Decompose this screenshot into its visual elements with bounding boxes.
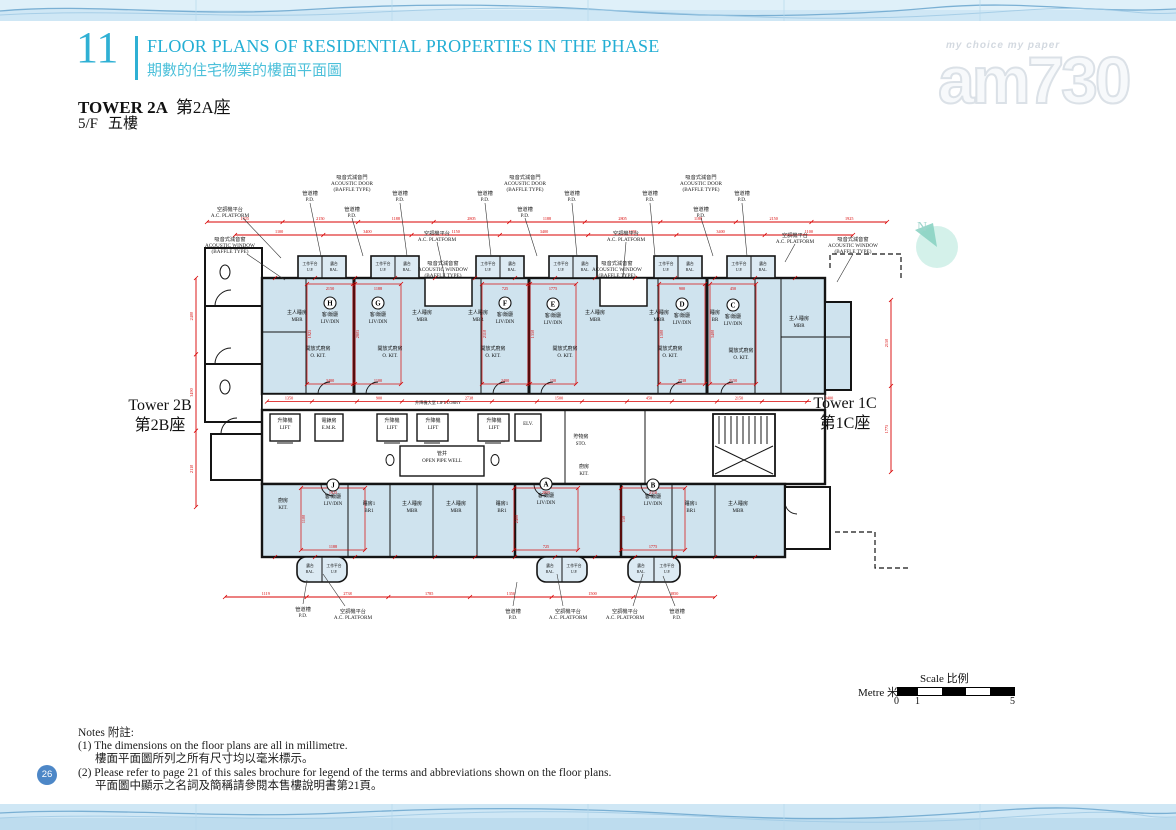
svg-text:管道槽: 管道槽 (302, 189, 318, 197)
svg-text:主人睡房: 主人睡房 (789, 315, 809, 322)
svg-text:BAL.: BAL. (330, 268, 339, 272)
svg-text:睡房: 睡房 (710, 309, 720, 316)
floor-heading-zh: 五樓 (108, 116, 138, 132)
svg-text:LIFT: LIFT (280, 426, 291, 431)
svg-text:電錶房: 電錶房 (321, 417, 336, 424)
svg-text:O. KIT.: O. KIT. (662, 354, 677, 359)
svg-text:2150: 2150 (735, 396, 743, 401)
svg-text:E: E (551, 301, 556, 309)
svg-text:BAL.: BAL. (508, 268, 517, 272)
svg-text:升降機: 升降機 (486, 417, 501, 424)
staircase (713, 414, 775, 476)
svg-text:LIV/DIN: LIV/DIN (644, 502, 663, 507)
svg-text:1500: 1500 (659, 330, 664, 338)
svg-text:3850: 3850 (670, 591, 678, 596)
svg-text:露台: 露台 (546, 563, 554, 568)
svg-text:LIFT: LIFT (428, 426, 439, 431)
svg-text:主人睡房: 主人睡房 (412, 309, 432, 316)
svg-text:E.M.R.: E.M.R. (322, 426, 337, 431)
scale-tick-1: 1 (915, 696, 920, 707)
svg-text:BR1: BR1 (364, 509, 374, 514)
svg-text:450: 450 (646, 396, 652, 401)
svg-text:MBR: MBR (450, 509, 462, 514)
svg-text:KIT.: KIT. (579, 472, 588, 477)
svg-text:客/飯廳: 客/飯廳 (538, 492, 554, 499)
svg-text:2805: 2805 (618, 216, 626, 221)
svg-text:BAL.: BAL. (759, 268, 768, 272)
svg-text:P.D.: P.D. (299, 613, 308, 619)
svg-text:1775: 1775 (649, 544, 657, 549)
svg-text:3400: 3400 (326, 378, 334, 383)
svg-text:BAL.: BAL. (686, 268, 695, 272)
svg-text:2738: 2738 (678, 378, 686, 383)
notes-heading: Notes 附註: (78, 727, 611, 740)
tower-heading-zh: 第2A座 (176, 98, 231, 117)
svg-text:空調機平台: 空調機平台 (217, 205, 243, 213)
svg-text:BR1: BR1 (497, 509, 507, 514)
svg-text:工作平台: 工作平台 (375, 261, 390, 266)
svg-text:O. KIT.: O. KIT. (485, 354, 500, 359)
svg-text:管道槽: 管道槽 (344, 205, 360, 213)
svg-text:主人睡房: 主人睡房 (287, 309, 307, 316)
svg-text:1100: 1100 (301, 515, 306, 523)
svg-text:開放式廚房: 開放式廚房 (552, 345, 577, 352)
svg-text:2400: 2400 (189, 312, 194, 320)
svg-text:2805: 2805 (355, 330, 360, 338)
svg-text:工作平台: 工作平台 (553, 261, 568, 266)
svg-text:H: H (327, 300, 333, 308)
svg-text:U.P.: U.P. (331, 570, 337, 574)
svg-text:(BAFFLE TYPE): (BAFFLE TYPE) (683, 186, 720, 193)
svg-text:LIV/DIN: LIV/DIN (544, 321, 563, 326)
north-label-glyph: N (917, 220, 927, 235)
svg-text:工作平台: 工作平台 (326, 563, 341, 568)
svg-text:開放式廚房: 開放式廚房 (305, 345, 330, 352)
svg-text:725: 725 (543, 544, 549, 549)
svg-text:主人睡房: 主人睡房 (468, 309, 488, 316)
north-compass: N (903, 205, 967, 277)
svg-text:3400: 3400 (716, 229, 724, 234)
svg-text:客/飯廳: 客/飯廳 (325, 493, 341, 500)
svg-text:A.C. PLATFORM: A.C. PLATFORM (606, 615, 645, 621)
svg-text:升降機: 升降機 (425, 417, 440, 424)
svg-text:開放式廚房: 開放式廚房 (657, 345, 682, 352)
svg-text:2400: 2400 (514, 515, 519, 523)
note-2-zh: 平面圖中顯示之名詞及簡稱請參閱本售樓說明書第21頁。 (78, 780, 611, 793)
svg-text:管井: 管井 (437, 450, 447, 457)
svg-text:2400: 2400 (501, 378, 509, 383)
svg-text:管道槽: 管道槽 (693, 205, 709, 213)
svg-text:主人睡房: 主人睡房 (585, 309, 605, 316)
page-title-zh: 期數的住宅物業的樓面平面圖 (147, 59, 342, 80)
svg-text:1188: 1188 (329, 544, 337, 549)
svg-text:空調機平台: 空調機平台 (613, 229, 639, 237)
svg-text:露台: 露台 (306, 563, 314, 568)
svg-text:A: A (543, 481, 548, 489)
svg-text:1188: 1188 (392, 216, 400, 221)
svg-text:U.P.: U.P. (558, 268, 564, 272)
svg-text:U.P.: U.P. (663, 268, 669, 272)
tower-2b-en: Tower 2B (105, 396, 215, 416)
svg-text:U.P.: U.P. (380, 268, 386, 272)
scale-bar: Scale 比例 Metre 米 0 1 5 (858, 668, 1034, 712)
svg-text:露台: 露台 (581, 261, 589, 266)
page-number-badge: 26 (37, 765, 57, 785)
svg-text:露台: 露台 (637, 563, 645, 568)
svg-text:吸音式減音窗: 吸音式減音窗 (601, 259, 632, 267)
svg-text:開放式廚房: 開放式廚房 (480, 345, 505, 352)
svg-text:O. KIT.: O. KIT. (557, 354, 572, 359)
svg-text:2150: 2150 (729, 378, 737, 383)
svg-text:MBR: MBR (653, 318, 665, 323)
svg-text:露台: 露台 (508, 261, 516, 266)
svg-text:開放式廚房: 開放式廚房 (377, 345, 402, 352)
svg-text:管道槽: 管道槽 (392, 189, 408, 197)
svg-text:管道槽: 管道槽 (669, 607, 685, 615)
svg-text:G: G (375, 300, 381, 308)
svg-text:客/飯廳: 客/飯廳 (645, 493, 661, 500)
svg-text:150: 150 (550, 378, 556, 383)
scale-label: Scale 比例 (920, 670, 969, 686)
svg-text:(BAFFLE TYPE): (BAFFLE TYPE) (599, 272, 636, 279)
brochure-page: 11 FLOOR PLANS OF RESIDENTIAL PROPERTIES… (0, 0, 1176, 830)
svg-text:管道槽: 管道槽 (564, 189, 580, 197)
svg-text:1350: 1350 (530, 330, 535, 338)
top-wave-art (0, 0, 1176, 21)
svg-text:MBR: MBR (291, 318, 303, 323)
svg-text:LIV/DIN: LIV/DIN (321, 320, 340, 325)
svg-text:廚房: 廚房 (579, 463, 589, 470)
svg-text:2738: 2738 (343, 591, 351, 596)
svg-text:開放式廚房: 開放式廚房 (728, 347, 753, 354)
svg-text:管道槽: 管道槽 (517, 205, 533, 213)
svg-text:吸音式減音門: 吸音式減音門 (336, 173, 367, 181)
note-1-zh: 樓面平面圖所列之所有尺寸均以毫米標示。 (78, 753, 611, 766)
svg-text:露台: 露台 (759, 261, 767, 266)
svg-text:900: 900 (679, 286, 685, 291)
svg-text:MBR: MBR (406, 509, 418, 514)
svg-text:3400: 3400 (540, 229, 548, 234)
scale-bar-strip (897, 687, 1015, 696)
svg-text:客/飯廳: 客/飯廳 (322, 311, 338, 318)
svg-text:LIV/DIN: LIV/DIN (324, 502, 343, 507)
svg-text:(BAFFLE TYPE): (BAFFLE TYPE) (212, 248, 249, 255)
svg-text:U.P.: U.P. (736, 268, 742, 272)
svg-text:BAL.: BAL. (306, 570, 315, 574)
svg-text:1785: 1785 (425, 591, 433, 596)
svg-text:1775: 1775 (549, 286, 557, 291)
svg-text:主人睡房: 主人睡房 (446, 500, 466, 507)
svg-text:1925: 1925 (845, 216, 853, 221)
svg-text:KIT.: KIT. (278, 506, 287, 511)
svg-text:吸音式減音窗: 吸音式減音窗 (837, 235, 868, 243)
svg-text:450: 450 (730, 286, 736, 291)
note-2-en: (2) Please refer to page 21 of this sale… (78, 767, 611, 780)
svg-text:C: C (730, 302, 735, 310)
svg-text:LIV/DIN: LIV/DIN (496, 320, 515, 325)
svg-text:空調機平台: 空調機平台 (782, 231, 808, 239)
svg-text:客/飯廳: 客/飯廳 (545, 312, 561, 319)
svg-text:BAL.: BAL. (546, 570, 555, 574)
svg-text:1925: 1925 (307, 330, 312, 338)
bottom-wave-art (0, 804, 1176, 830)
svg-text:升降機: 升降機 (384, 417, 399, 424)
svg-text:主人睡房: 主人睡房 (402, 500, 422, 507)
svg-text:管道槽: 管道槽 (295, 605, 311, 613)
svg-text:貯物房: 貯物房 (573, 433, 588, 440)
svg-text:吸音式減音門: 吸音式減音門 (685, 173, 716, 181)
tower-1c-zh: 第1C座 (790, 414, 900, 434)
svg-text:1100: 1100 (374, 378, 382, 383)
scale-tick-5: 5 (1010, 696, 1015, 707)
svg-text:A.C. PLATFORM: A.C. PLATFORM (776, 239, 815, 245)
svg-text:(BAFFLE TYPE): (BAFFLE TYPE) (507, 186, 544, 193)
svg-text:U.P.: U.P. (571, 570, 577, 574)
svg-text:OPEN PIPE WELL: OPEN PIPE WELL (422, 459, 462, 464)
svg-text:客/飯廳: 客/飯廳 (674, 312, 690, 319)
svg-text:客/飯廳: 客/飯廳 (497, 311, 513, 318)
svg-text:露台: 露台 (330, 261, 338, 266)
svg-text:A.C. PLATFORM: A.C. PLATFORM (334, 615, 373, 621)
section-number: 11 (76, 26, 118, 70)
svg-text:空調機平台: 空調機平台 (340, 607, 366, 615)
svg-text:工作平台: 工作平台 (658, 261, 673, 266)
page-title-en: FLOOR PLANS OF RESIDENTIAL PROPERTIES IN… (147, 36, 659, 57)
svg-text:3400: 3400 (363, 229, 371, 234)
svg-text:U.P.: U.P. (307, 268, 313, 272)
svg-text:U.P.: U.P. (664, 570, 670, 574)
svg-text:1500: 1500 (555, 396, 563, 401)
bottom-wave-bar (0, 804, 1176, 830)
svg-text:MBR: MBR (589, 318, 601, 323)
am730-logo: am730 (938, 42, 1129, 118)
svg-text:(BAFFLE TYPE): (BAFFLE TYPE) (835, 248, 872, 255)
svg-text:吸音式減音門: 吸音式減音門 (509, 173, 540, 181)
svg-text:LIV/DIN: LIV/DIN (369, 320, 388, 325)
svg-text:管道槽: 管道槽 (477, 189, 493, 197)
metre-label: Metre 米 (858, 684, 898, 700)
svg-text:BAL.: BAL. (637, 570, 646, 574)
svg-text:2150: 2150 (326, 286, 334, 291)
svg-text:1500: 1500 (588, 591, 596, 596)
svg-text:1188: 1188 (374, 286, 382, 291)
svg-text:管道槽: 管道槽 (642, 189, 658, 197)
svg-text:1350: 1350 (285, 396, 293, 401)
svg-text:工作平台: 工作平台 (566, 563, 581, 568)
svg-text:P.D.: P.D. (481, 197, 490, 203)
svg-text:1350: 1350 (507, 591, 515, 596)
svg-text:A.C. PLATFORM: A.C. PLATFORM (211, 213, 250, 219)
tower-1c-en: Tower 1C (790, 394, 900, 414)
svg-text:F: F (503, 300, 507, 308)
svg-text:U.P.: U.P. (485, 268, 491, 272)
svg-text:升降機: 升降機 (277, 417, 292, 424)
svg-text:D: D (679, 301, 684, 309)
svg-text:2805: 2805 (467, 216, 475, 221)
svg-text:吸音式減音窗: 吸音式減音窗 (427, 259, 458, 267)
top-wave-bar (0, 0, 1176, 21)
svg-text:客/飯廳: 客/飯廳 (725, 313, 741, 320)
svg-text:(BAFFLE TYPE): (BAFFLE TYPE) (425, 272, 462, 279)
svg-text:睡房1: 睡房1 (363, 500, 376, 507)
am730-watermark: my choice my paper am730 (884, 30, 1170, 126)
tower-2b-label: Tower 2B 第2B座 (105, 396, 215, 436)
svg-text:LIV/DIN: LIV/DIN (673, 321, 692, 326)
svg-text:2110: 2110 (189, 465, 194, 473)
svg-text:MBR: MBR (472, 318, 484, 323)
svg-text:ELV.: ELV. (523, 422, 533, 427)
svg-text:1150: 1150 (452, 229, 460, 234)
svg-text:O. KIT.: O. KIT. (310, 354, 325, 359)
svg-text:P.D.: P.D. (738, 197, 747, 203)
svg-text:150: 150 (621, 516, 626, 522)
floor-heading: 5/F五樓 (78, 112, 138, 133)
scale-tick-0: 0 (894, 696, 899, 707)
svg-text:露台: 露台 (686, 261, 694, 266)
svg-text:LIV/DIN: LIV/DIN (537, 501, 556, 506)
svg-text:2738: 2738 (465, 396, 473, 401)
svg-text:工作平台: 工作平台 (480, 261, 495, 266)
svg-text:P.D.: P.D. (568, 197, 577, 203)
svg-text:廚房: 廚房 (278, 497, 288, 504)
svg-text:MBR: MBR (732, 509, 744, 514)
svg-text:升降機大堂 LIFT LOBBY: 升降機大堂 LIFT LOBBY (415, 399, 461, 406)
svg-text:主人睡房: 主人睡房 (649, 309, 669, 316)
svg-text:工作平台: 工作平台 (659, 563, 674, 568)
svg-text:工作平台: 工作平台 (731, 261, 746, 266)
svg-text:主人睡房: 主人睡房 (728, 500, 748, 507)
svg-text:900: 900 (376, 396, 382, 401)
tower-2b-zh: 第2B座 (105, 416, 215, 436)
svg-text:睡房1: 睡房1 (685, 500, 698, 507)
svg-text:1100: 1100 (275, 229, 283, 234)
svg-text:LIV/DIN: LIV/DIN (724, 322, 743, 327)
svg-text:B: B (651, 482, 656, 490)
svg-text:客/飯廳: 客/飯廳 (370, 311, 386, 318)
svg-text:空調機平台: 空調機平台 (555, 607, 581, 615)
svg-text:P.D.: P.D. (509, 615, 518, 621)
svg-text:MBR: MBR (793, 324, 805, 329)
svg-text:A.C. PLATFORM: A.C. PLATFORM (549, 615, 588, 621)
svg-text:管道槽: 管道槽 (734, 189, 750, 197)
svg-text:MBR: MBR (416, 318, 428, 323)
svg-text:725: 725 (502, 286, 508, 291)
svg-text:P.D.: P.D. (306, 197, 315, 203)
north-compass-icon: N (903, 205, 967, 277)
svg-text:STO.: STO. (576, 442, 587, 447)
svg-text:P.D.: P.D. (396, 197, 405, 203)
svg-text:吸音式減音窗: 吸音式減音窗 (214, 235, 245, 243)
svg-text:1119: 1119 (262, 591, 270, 596)
svg-text:管道槽: 管道槽 (505, 607, 521, 615)
svg-text:BAL.: BAL. (403, 268, 412, 272)
svg-text:BR: BR (712, 318, 719, 323)
svg-text:P.D.: P.D. (646, 197, 655, 203)
svg-text:工作平台: 工作平台 (302, 261, 317, 266)
svg-text:2150: 2150 (884, 339, 889, 347)
floor-heading-en: 5/F (78, 116, 98, 132)
svg-text:空調機平台: 空調機平台 (424, 229, 450, 237)
svg-text:BR1: BR1 (686, 509, 696, 514)
svg-text:O. KIT.: O. KIT. (382, 354, 397, 359)
svg-text:睡房1: 睡房1 (496, 500, 509, 507)
svg-text:3400: 3400 (710, 330, 715, 338)
svg-text:2150: 2150 (316, 216, 324, 221)
svg-text:露台: 露台 (403, 261, 411, 266)
svg-text:J: J (331, 482, 335, 490)
header-divider (135, 36, 138, 80)
svg-text:P.D.: P.D. (673, 615, 682, 621)
svg-text:(BAFFLE TYPE): (BAFFLE TYPE) (334, 186, 371, 193)
tower-1c-label: Tower 1C 第1C座 (790, 394, 900, 434)
svg-text:LIFT: LIFT (489, 426, 500, 431)
note-1-en: (1) The dimensions on the floor plans ar… (78, 740, 611, 753)
svg-text:O. KIT.: O. KIT. (733, 356, 748, 361)
svg-text:空調機平台: 空調機平台 (612, 607, 638, 615)
svg-text:2150: 2150 (769, 216, 777, 221)
svg-text:BAL.: BAL. (581, 268, 590, 272)
svg-text:2110: 2110 (482, 330, 487, 338)
svg-text:LIFT: LIFT (387, 426, 398, 431)
svg-text:1188: 1188 (543, 216, 551, 221)
notes-block: Notes 附註: (1) The dimensions on the floo… (78, 727, 611, 793)
